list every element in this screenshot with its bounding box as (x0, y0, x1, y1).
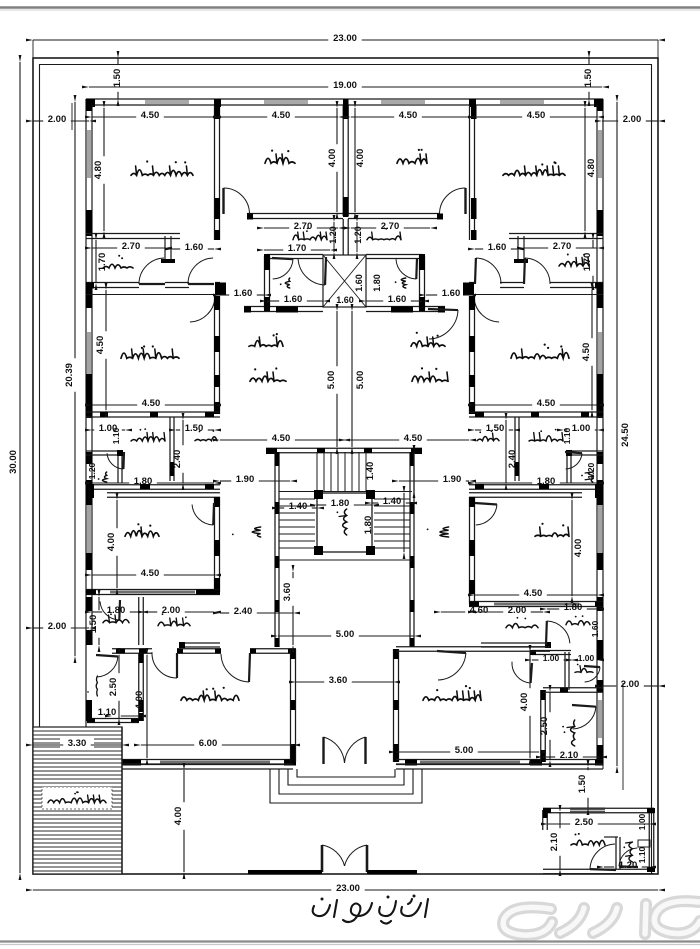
svg-text:1.60: 1.60 (354, 274, 364, 292)
svg-text:4.80: 4.80 (586, 159, 597, 178)
svg-text:1.40: 1.40 (289, 501, 308, 512)
svg-text:1.60: 1.60 (590, 620, 600, 637)
svg-text:1.00: 1.00 (572, 423, 591, 434)
svg-text:1.00: 1.00 (578, 653, 595, 663)
svg-text:1.20: 1.20 (619, 860, 638, 871)
svg-text:4.50: 4.50 (95, 336, 106, 355)
svg-text:1.90: 1.90 (236, 474, 255, 485)
svg-text:24.50: 24.50 (620, 423, 631, 447)
svg-text:1.60: 1.60 (234, 288, 253, 299)
svg-text:1.50: 1.50 (185, 423, 204, 434)
svg-text:1.20: 1.20 (586, 462, 596, 479)
svg-text:1.80: 1.80 (134, 476, 153, 487)
svg-text:1.80: 1.80 (107, 605, 126, 616)
svg-text:4.80: 4.80 (93, 161, 104, 180)
svg-text:1.90: 1.90 (443, 474, 462, 485)
svg-text:6.00: 6.00 (199, 738, 218, 749)
svg-text:23.00: 23.00 (336, 883, 360, 894)
svg-text:2.70: 2.70 (294, 221, 313, 232)
svg-text:4.50: 4.50 (141, 110, 160, 121)
svg-text:4.00: 4.00 (327, 149, 338, 168)
svg-text:1.00: 1.00 (637, 813, 647, 830)
svg-text:2.00: 2.00 (48, 114, 67, 125)
svg-text:2.40: 2.40 (234, 606, 253, 617)
svg-text:1.10: 1.10 (637, 846, 647, 863)
svg-text:2.00: 2.00 (623, 114, 642, 125)
svg-text:1.40: 1.40 (383, 496, 402, 507)
svg-text:5.00: 5.00 (355, 371, 366, 390)
svg-text:1.60: 1.60 (284, 294, 303, 305)
svg-text:1.70: 1.70 (288, 243, 307, 254)
svg-text:4.50: 4.50 (524, 588, 543, 599)
svg-text:1.10: 1.10 (111, 427, 121, 444)
svg-text:4.50: 4.50 (272, 110, 291, 121)
svg-text:4.00: 4.00 (519, 693, 530, 712)
svg-text:2.10: 2.10 (549, 833, 560, 852)
svg-text:1.50: 1.50 (583, 69, 594, 88)
svg-text:5.00: 5.00 (326, 371, 337, 390)
svg-text:2.10: 2.10 (560, 750, 579, 761)
svg-text:2.70: 2.70 (122, 241, 141, 252)
svg-text:4.50: 4.50 (399, 110, 418, 121)
svg-text:1.60: 1.60 (442, 288, 461, 299)
svg-text:1.50: 1.50 (112, 69, 123, 88)
svg-text:19.00: 19.00 (333, 80, 357, 91)
svg-text:1.60: 1.60 (488, 242, 507, 253)
svg-text:2.00: 2.00 (48, 621, 67, 632)
svg-text:1.60: 1.60 (336, 295, 354, 305)
svg-text:1.60: 1.60 (388, 294, 407, 305)
svg-text:4.00: 4.00 (173, 807, 184, 826)
svg-text:3.60: 3.60 (329, 675, 348, 686)
svg-text:2.40: 2.40 (172, 450, 183, 469)
svg-text:3.60: 3.60 (282, 583, 293, 602)
svg-text:1.50: 1.50 (577, 775, 588, 794)
svg-text:1.80: 1.80 (537, 476, 556, 487)
svg-text:2.70: 2.70 (553, 241, 572, 252)
svg-text:1.10: 1.10 (98, 707, 117, 718)
svg-text:1.40: 1.40 (365, 462, 376, 481)
svg-text:4.00: 4.00 (573, 539, 584, 558)
svg-text:1.80: 1.80 (331, 498, 350, 509)
svg-text:1.10: 1.10 (562, 427, 572, 444)
svg-text:1.60: 1.60 (185, 242, 204, 253)
svg-text:4.60: 4.60 (470, 605, 489, 616)
svg-text:1.80: 1.80 (363, 516, 374, 535)
svg-text:1.20: 1.20 (87, 462, 97, 479)
svg-text:2.00: 2.00 (162, 605, 181, 616)
svg-text:4.00: 4.00 (106, 533, 117, 552)
svg-text:1.00: 1.00 (543, 653, 560, 663)
svg-text:2.40: 2.40 (507, 450, 518, 469)
svg-text:4.50: 4.50 (142, 398, 161, 409)
svg-text:1.50: 1.50 (88, 615, 99, 634)
svg-text:1.50: 1.50 (486, 423, 505, 434)
svg-text:1.80: 1.80 (564, 602, 583, 613)
svg-text:2.50: 2.50 (575, 817, 594, 828)
svg-text:2.50: 2.50 (539, 717, 550, 736)
svg-text:2.00: 2.00 (621, 679, 640, 690)
svg-text:4.00: 4.00 (134, 691, 145, 710)
svg-text:4.50: 4.50 (272, 433, 291, 444)
svg-text:1.20: 1.20 (353, 226, 363, 244)
svg-text:2.00: 2.00 (508, 605, 527, 616)
svg-text:20.39: 20.39 (64, 363, 75, 387)
svg-text:30.00: 30.00 (8, 450, 19, 474)
svg-text:4.50: 4.50 (404, 433, 423, 444)
svg-text:2.50: 2.50 (108, 678, 119, 697)
svg-text:5.00: 5.00 (455, 745, 474, 756)
svg-text:23.00: 23.00 (333, 33, 357, 44)
svg-text:4.50: 4.50 (527, 110, 546, 121)
svg-text:5.00: 5.00 (336, 629, 355, 640)
svg-text:1.20: 1.20 (328, 226, 338, 244)
svg-text:2.70: 2.70 (381, 221, 400, 232)
svg-text:4.00: 4.00 (355, 149, 366, 168)
svg-text:4.50: 4.50 (581, 343, 592, 362)
svg-text:4.50: 4.50 (537, 398, 556, 409)
svg-text:3.30: 3.30 (68, 738, 87, 749)
svg-text:1.80: 1.80 (372, 274, 382, 292)
svg-text:4.50: 4.50 (141, 568, 160, 579)
